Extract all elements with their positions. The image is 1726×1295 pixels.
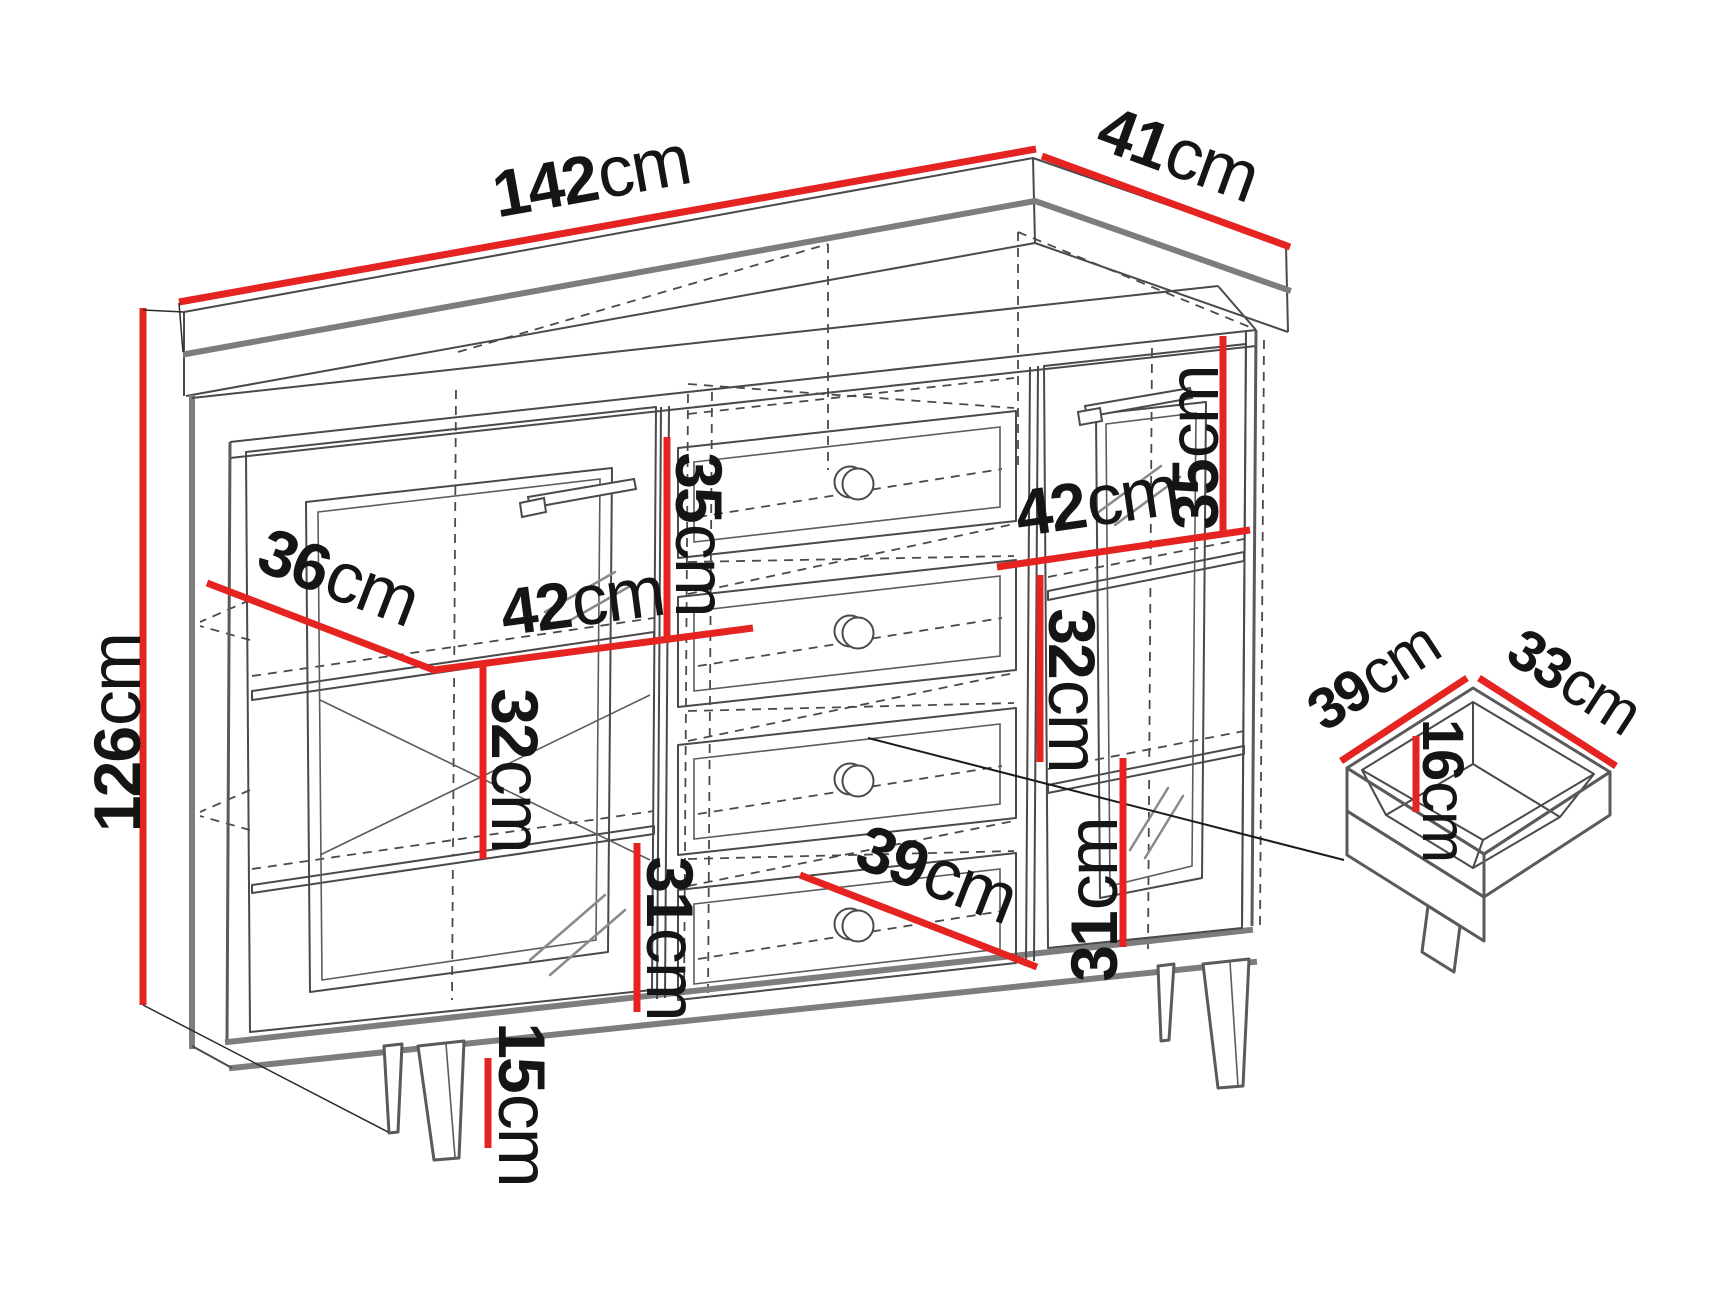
left-door bbox=[246, 407, 656, 1032]
dim-label-overall-height: 126cm bbox=[76, 634, 156, 832]
furniture-dimension-diagram: 142cm 41cm 126cm 36cm 35cm 42cm 32cm 31c… bbox=[0, 0, 1726, 1295]
dim-label-right-width: 42cm bbox=[1010, 450, 1183, 553]
dim-label-leg-height: 15cm bbox=[483, 1022, 563, 1185]
dim-label-interior-depth: 36cm bbox=[248, 509, 429, 642]
leg-back-left bbox=[384, 1044, 402, 1133]
leg-back-right bbox=[1158, 964, 1174, 1041]
leg-front-left bbox=[418, 1041, 464, 1160]
shelf-left-lower bbox=[252, 826, 654, 893]
left-door-handle bbox=[520, 479, 636, 517]
dim-label-right-bottom-height: 31cm bbox=[1053, 818, 1133, 981]
dim-label-drawer-box-depth: 33cm bbox=[1496, 612, 1654, 748]
drawer-front-panel-foot bbox=[1422, 906, 1460, 972]
diagram-canvas: 142cm 41cm 126cm 36cm 35cm 42cm 32cm 31c… bbox=[0, 0, 1726, 1295]
drawer-3 bbox=[678, 708, 1016, 855]
leg-front-right bbox=[1203, 959, 1249, 1088]
dim-label-left-top-height: 35cm bbox=[660, 452, 740, 615]
shelf-right-upper bbox=[1048, 552, 1244, 600]
dim-label-right-middle-height: 32cm bbox=[1033, 608, 1113, 771]
dim-label-left-bottom-height: 31cm bbox=[631, 856, 711, 1019]
dim-label-left-middle-height: 32cm bbox=[476, 688, 556, 851]
dim-label-drawer-box-height: 16cm bbox=[1409, 719, 1479, 862]
dim-label-overall-depth: 41cm bbox=[1088, 87, 1269, 218]
